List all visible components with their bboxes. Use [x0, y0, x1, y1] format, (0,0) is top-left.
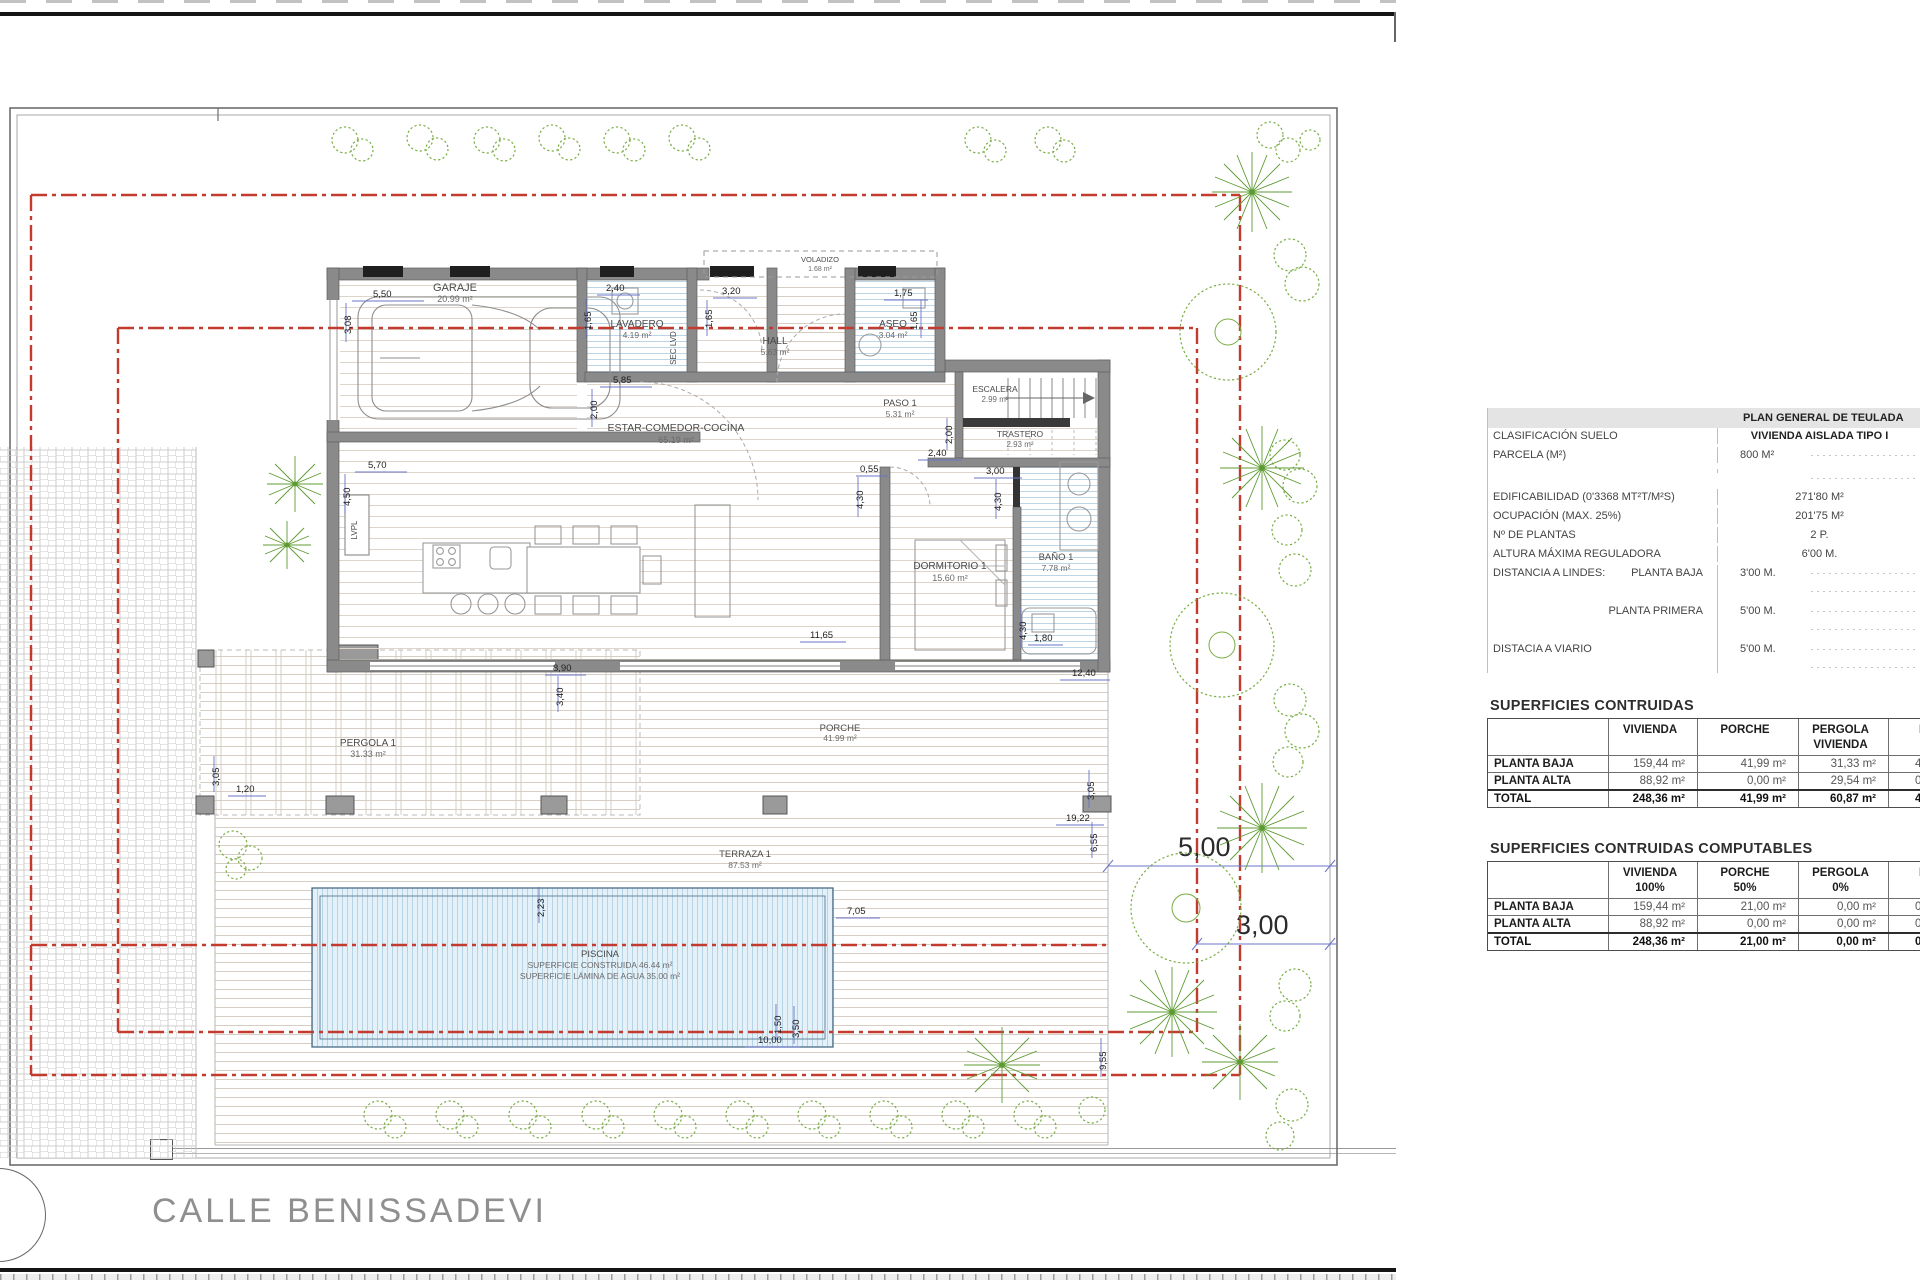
svg-text:0,55: 0,55 — [860, 464, 879, 475]
dotted-filler — [1811, 591, 1919, 592]
svg-text:87.53 m²: 87.53 m² — [728, 860, 762, 870]
dotted-filler — [1811, 611, 1919, 612]
table-row: PLANTA BAJA 159,44 m² 21,00 m² 0,00 m² 0 — [1488, 898, 1920, 915]
room-pergola: PERGOLA 1 — [340, 738, 397, 749]
svg-text:2.93 m²: 2.93 m² — [1006, 440, 1033, 449]
setback-dimensions: 5,00 3,00 — [1103, 832, 1337, 950]
svg-text:11,65: 11,65 — [810, 630, 833, 641]
room-voladizo: VOLADIZO — [801, 255, 839, 264]
svg-text:1,80: 1,80 — [1034, 633, 1053, 644]
paved-area — [0, 447, 196, 1158]
side-setback-dim: 3,00 — [1236, 910, 1289, 940]
svg-text:1,65: 1,65 — [704, 310, 715, 329]
svg-text:1,75: 1,75 — [894, 288, 913, 299]
svg-text:4,30: 4,30 — [855, 491, 866, 510]
pool-built: SUPERFICIE CONSTRUIDA 46.44 m² — [527, 960, 672, 970]
room-terraza: TERRAZA 1 — [719, 849, 771, 860]
room-hall: HALL — [762, 336, 787, 347]
pool-water: SUPERFICIE LÁMINA DE AGUA 35.00 m² — [520, 971, 680, 981]
table-row: PLANTA BAJA 159,44 m² 41,99 m² 31,33 m² … — [1488, 755, 1920, 772]
svg-text:2,00: 2,00 — [944, 426, 955, 445]
svg-text:3.04 m²: 3.04 m² — [879, 330, 908, 340]
svg-text:3,50: 3,50 — [791, 1020, 802, 1039]
computables-title: SUPERFICIES CONTRUIDAS COMPUTABLES — [1490, 841, 1813, 857]
svg-text:3,00: 3,00 — [986, 466, 1005, 477]
svg-text:5.63 m²: 5.63 m² — [761, 347, 790, 357]
table-row: Nº DE PLANTAS 2 P. — [1488, 527, 1920, 546]
svg-text:2.99 m²: 2.99 m² — [981, 395, 1008, 404]
computables-table: VIVIENDA100% PORCHE50% PERGOLA0% PIS PLA… — [1487, 861, 1920, 951]
plan-general-table: PLAN GENERAL DE TEULADA CLASIFICACIÓN SU… — [1487, 408, 1920, 673]
svg-text:4,30: 4,30 — [1018, 622, 1029, 641]
table-row: DISTANCIA A LINDES: PLANTA BAJA 3'00 M. — [1488, 565, 1920, 603]
svg-text:3,20: 3,20 — [722, 286, 741, 297]
dotted-filler — [1811, 649, 1919, 650]
svg-text:65.19 m²: 65.19 m² — [658, 435, 694, 445]
svg-text:2,40: 2,40 — [606, 283, 625, 294]
table-row: CLASIFICACIÓN SUELO VIVIENDA AISLADA TIP… — [1488, 428, 1920, 447]
total-row: TOTAL 248,36 m² 41,99 m² 60,87 m² 46 — [1488, 789, 1920, 807]
dotted-filler — [1811, 573, 1919, 574]
svg-text:1,20: 1,20 — [236, 784, 255, 795]
svg-text:2,40: 2,40 — [928, 448, 947, 459]
table-row: PARCELA (M²) 800 M² — [1488, 447, 1920, 469]
header-row: VIVIENDA100% PORCHE50% PERGOLA0% PIS — [1488, 862, 1920, 898]
svg-text:15.60 m²: 15.60 m² — [932, 573, 968, 583]
svg-text:12,40: 12,40 — [1072, 668, 1096, 679]
table-row: PLANTA ALTA 88,92 m² 0,00 m² 0,00 m² 0 — [1488, 915, 1920, 932]
pool-name: PISCINA — [581, 949, 620, 960]
svg-text:2,23: 2,23 — [536, 899, 547, 918]
svg-text:3,05: 3,05 — [1086, 782, 1097, 801]
dotted-filler — [1811, 478, 1919, 479]
table-row: EDIFICABILIDAD (0'3368 MT²T/M²S) 271'80 … — [1488, 489, 1920, 508]
room-garaje: GARAJE — [433, 282, 477, 294]
svg-text:4,30: 4,30 — [993, 493, 1004, 512]
room-aseo: ASEO — [879, 319, 907, 330]
svg-text:5,70: 5,70 — [368, 460, 387, 471]
room-floors — [339, 280, 1098, 660]
svg-text:41.99 m²: 41.99 m² — [823, 733, 857, 743]
header-row: VIVIENDA PORCHE PERGOLAVIVIENDA PIS — [1488, 719, 1920, 755]
room-estar: ESTAR-COMEDOR-COCINA — [608, 422, 745, 434]
svg-text:1.68 m²: 1.68 m² — [808, 266, 832, 273]
table-row: OCUPACIÓN (MAX. 25%) 201'75 M² — [1488, 508, 1920, 527]
svg-text:3,05: 3,05 — [211, 768, 222, 787]
table-row: PLANTA PRIMERA 5'00 M. — [1488, 603, 1920, 641]
room-escalera: ESCALERA — [972, 384, 1018, 394]
svg-text:6,55: 6,55 — [1089, 834, 1100, 853]
svg-text:8,90: 8,90 — [553, 663, 572, 674]
table-row: DISTACIA A VIARIO 5'00 M. — [1488, 641, 1920, 673]
svg-text:31.33 m²: 31.33 m² — [350, 749, 386, 759]
svg-text:2,00: 2,00 — [589, 401, 600, 420]
room-paso: PASO 1 — [883, 398, 917, 409]
svg-text:20.99 m²: 20.99 m² — [437, 294, 473, 304]
svg-text:1,65: 1,65 — [583, 312, 594, 331]
plan-general-title-band: PLAN GENERAL DE TEULADA — [1488, 408, 1920, 428]
svg-text:3,40: 3,40 — [555, 688, 566, 707]
svg-text:5,50: 5,50 — [373, 289, 392, 300]
svg-text:5.31 m²: 5.31 m² — [886, 409, 915, 419]
room-dormitorio: DORMITORIO 1 — [913, 561, 987, 572]
svg-text:10,00: 10,00 — [758, 1035, 782, 1046]
total-row: TOTAL 248,36 m² 21,00 m² 0,00 m² 0 — [1488, 932, 1920, 950]
front-setback-dim: 5,00 — [1178, 832, 1231, 862]
svg-text:3,08: 3,08 — [343, 316, 354, 335]
label-seclvd: SEC LVD — [669, 331, 678, 365]
room-trastero: TRASTERO — [997, 429, 1044, 439]
svg-text:1,50: 1,50 — [773, 1016, 784, 1035]
plan-general-title: PLAN GENERAL DE TEULADA — [1743, 412, 1904, 424]
table-row: PLANTA ALTA 88,92 m² 0,00 m² 29,54 m² 0 — [1488, 772, 1920, 789]
table-row: ALTURA MÁXIMA REGULADORA 6'00 M. — [1488, 546, 1920, 565]
svg-text:7.78 m²: 7.78 m² — [1042, 563, 1071, 573]
dotted-filler — [1811, 455, 1919, 456]
room-bano: BAÑO 1 — [1039, 552, 1074, 563]
svg-text:19,22: 19,22 — [1066, 813, 1090, 824]
svg-text:7,05: 7,05 — [847, 906, 866, 917]
dotted-filler — [1811, 629, 1919, 630]
superficies-table: VIVIENDA PORCHE PERGOLAVIVIENDA PIS PLAN… — [1487, 718, 1920, 808]
svg-text:4,50: 4,50 — [342, 488, 353, 507]
svg-text:5,85: 5,85 — [613, 375, 632, 386]
room-lavadero: LAVADERO — [611, 319, 664, 330]
dotted-filler — [1811, 667, 1919, 668]
site-plan-sheet: CALLE BENISSADEVI — [0, 0, 1920, 1280]
svg-text:9,55: 9,55 — [1098, 1052, 1109, 1071]
label-lvpl: LVPL — [350, 520, 359, 540]
table-row — [1488, 469, 1920, 489]
superficies-title: SUPERFICIES CONTRUIDAS — [1490, 698, 1694, 714]
svg-text:4.19 m²: 4.19 m² — [623, 330, 652, 340]
svg-text:1,65: 1,65 — [909, 312, 920, 331]
